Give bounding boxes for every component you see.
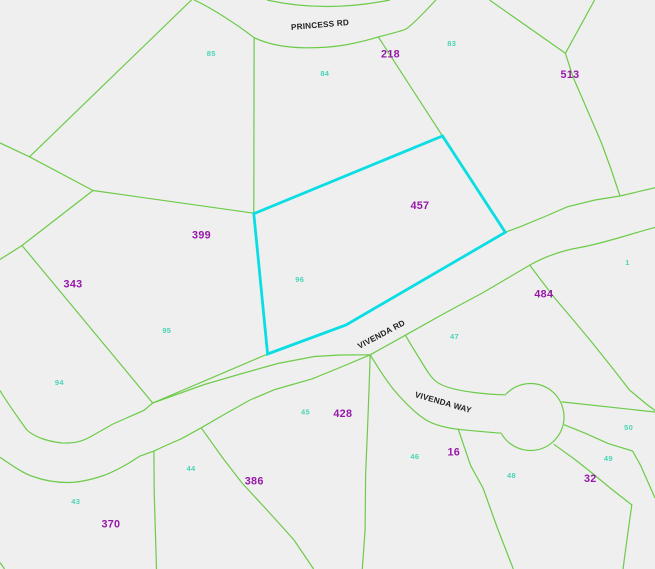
- svg-text:484: 484: [534, 289, 553, 301]
- svg-text:399: 399: [192, 230, 211, 242]
- svg-text:457: 457: [410, 200, 429, 212]
- svg-text:32: 32: [584, 473, 597, 485]
- svg-text:49: 49: [604, 454, 613, 463]
- svg-text:46: 46: [410, 452, 419, 461]
- svg-text:45: 45: [301, 408, 310, 417]
- svg-text:95: 95: [162, 326, 171, 335]
- svg-text:85: 85: [207, 49, 216, 58]
- svg-text:343: 343: [64, 279, 83, 291]
- svg-text:48: 48: [507, 471, 516, 480]
- svg-text:386: 386: [245, 476, 264, 488]
- svg-text:96: 96: [295, 275, 304, 284]
- svg-text:1: 1: [625, 258, 629, 267]
- svg-text:94: 94: [55, 378, 64, 387]
- svg-text:47: 47: [450, 332, 459, 341]
- svg-text:84: 84: [320, 69, 329, 78]
- svg-text:44: 44: [187, 464, 196, 473]
- svg-text:513: 513: [561, 69, 580, 81]
- svg-text:50: 50: [624, 423, 633, 432]
- svg-text:83: 83: [447, 39, 456, 48]
- svg-text:428: 428: [333, 408, 352, 420]
- svg-text:370: 370: [101, 519, 120, 531]
- svg-text:218: 218: [381, 49, 400, 61]
- svg-text:43: 43: [71, 497, 80, 506]
- svg-text:16: 16: [447, 447, 460, 459]
